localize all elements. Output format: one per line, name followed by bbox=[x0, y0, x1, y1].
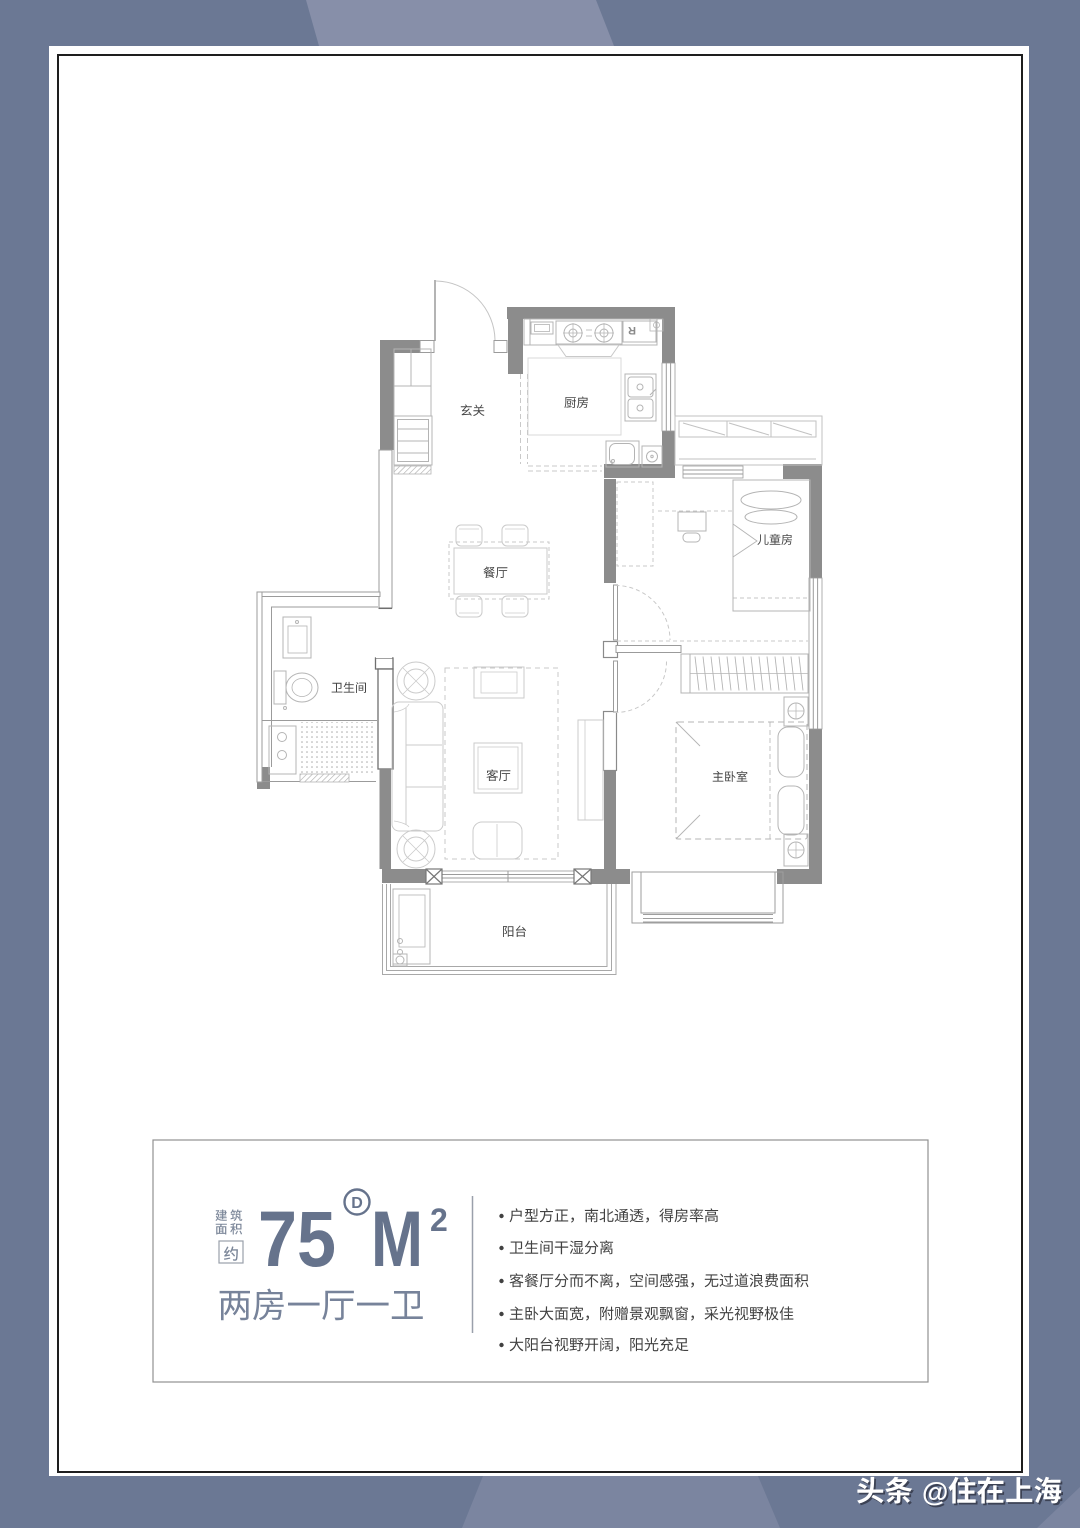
svg-text:D: D bbox=[351, 1195, 363, 1212]
svg-text:2: 2 bbox=[430, 1202, 448, 1238]
svg-text:R: R bbox=[628, 324, 636, 336]
svg-text:75: 75 bbox=[258, 1194, 336, 1283]
svg-text:@: @ bbox=[922, 1477, 948, 1507]
svg-text:M: M bbox=[371, 1194, 423, 1283]
